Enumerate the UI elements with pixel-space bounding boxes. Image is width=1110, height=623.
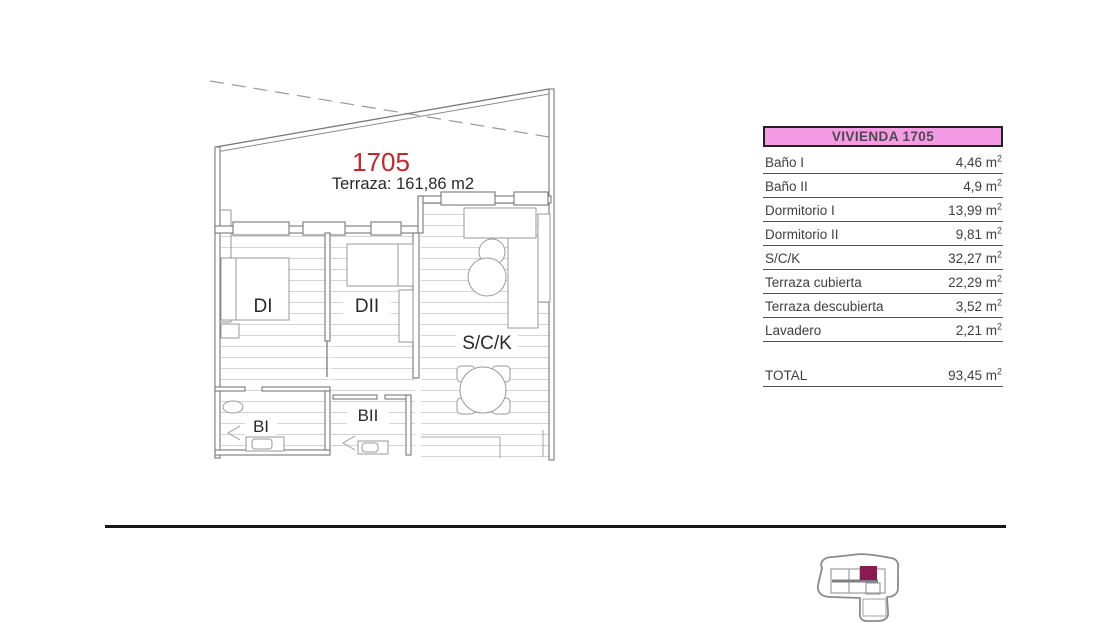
table-rows: Baño I 4,46 m2 Baño II 4,9 m2 Dormitorio… [763, 150, 1003, 342]
terrace-area-label: Terraza: 161,86 m2 [332, 175, 474, 193]
area-unit-exp: 2 [997, 274, 1002, 284]
room-label: Dormitorio I [765, 203, 835, 218]
room-area-value: 2,21 [956, 323, 982, 338]
area-unit: m [986, 179, 997, 194]
room-area-value: 3,52 [956, 299, 982, 314]
area-unit-exp: 2 [997, 202, 1002, 212]
table-row: Baño I 4,46 m2 [763, 150, 1003, 174]
area-unit: m [986, 203, 997, 218]
room-label: Lavadero [765, 323, 821, 338]
room-area: 4,9 m2 [963, 179, 1002, 194]
area-unit: m [986, 299, 997, 314]
table-row: Terraza cubierta 22,29 m2 [763, 270, 1003, 294]
total-label: TOTAL [765, 368, 807, 383]
room-label-dormitorio1: DI [254, 296, 273, 317]
room-area: 9,81 m2 [956, 227, 1002, 242]
locator-unit-highlight [860, 566, 877, 580]
area-unit-exp: 2 [997, 154, 1002, 164]
room-label-dormitorio2: DII [355, 296, 379, 317]
area-unit: m [986, 227, 997, 242]
room-label: S/C/K [765, 251, 800, 266]
room-area: 22,29 m2 [948, 275, 1002, 290]
room-area-value: 13,99 [948, 203, 982, 218]
table-row: Dormitorio II 9,81 m2 [763, 222, 1003, 246]
room-label: Baño II [765, 179, 808, 194]
total-area: 93,45 m2 [948, 368, 1002, 383]
room-area-value: 9,81 [956, 227, 982, 242]
table-header: VIVIENDA 1705 [763, 126, 1003, 147]
area-unit-exp: 2 [997, 178, 1002, 188]
room-label-salon-cocina: S/C/K [462, 333, 512, 354]
room-label: Baño I [765, 155, 804, 170]
room-label-bano2: BII [358, 406, 379, 425]
table-row: Baño II 4,9 m2 [763, 174, 1003, 198]
area-unit: m [986, 155, 997, 170]
room-area-value: 4,9 [963, 179, 982, 194]
room-area: 4,46 m2 [956, 155, 1002, 170]
room-area-value: 22,29 [948, 275, 982, 290]
area-unit: m [986, 275, 997, 290]
room-area: 3,52 m2 [956, 299, 1002, 314]
table-row: S/C/K 32,27 m2 [763, 246, 1003, 270]
building-locator-icon [805, 550, 905, 623]
total-area-value: 93,45 [948, 368, 982, 383]
room-area: 32,27 m2 [948, 251, 1002, 266]
area-unit: m [986, 368, 997, 383]
area-table: VIVIENDA 1705 Baño I 4,46 m2 Baño II 4,9… [763, 126, 1003, 387]
room-label: Terraza cubierta [765, 275, 862, 290]
area-unit: m [986, 323, 997, 338]
table-row: Terraza descubierta 3,52 m2 [763, 294, 1003, 318]
room-area-value: 4,46 [956, 155, 982, 170]
terrace-projection-lines [210, 81, 549, 152]
table-row: Dormitorio I 13,99 m2 [763, 198, 1003, 222]
room-area: 2,21 m2 [956, 323, 1002, 338]
area-unit-exp: 2 [997, 322, 1002, 332]
area-unit-exp: 2 [997, 226, 1002, 236]
divider-line [105, 525, 1006, 528]
area-unit: m [986, 251, 997, 266]
area-unit-exp: 2 [997, 250, 1002, 260]
total-row: TOTAL 93,45 m2 [763, 363, 1003, 387]
room-area-value: 32,27 [948, 251, 982, 266]
room-area: 13,99 m2 [948, 203, 1002, 218]
area-unit-exp: 2 [997, 298, 1002, 308]
page: 1705 Terraza: 161,86 m2 DI DII S/C/K BI … [0, 0, 1110, 623]
area-unit-exp: 2 [997, 367, 1002, 377]
room-label: Dormitorio II [765, 227, 839, 242]
room-label-bano1: BI [253, 417, 269, 436]
unit-number: 1705 [352, 147, 410, 177]
room-label: Terraza descubierta [765, 299, 884, 314]
floor-plan: 1705 Terraza: 161,86 m2 DI DII S/C/K BI … [205, 68, 570, 468]
table-row: Lavadero 2,21 m2 [763, 318, 1003, 342]
